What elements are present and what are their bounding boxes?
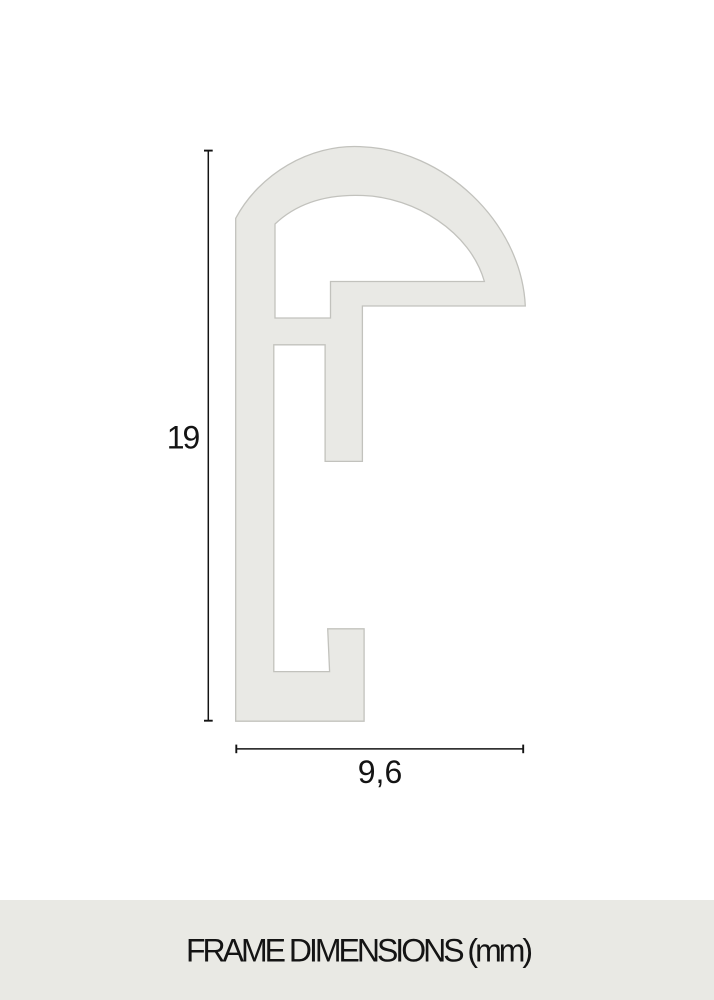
svg-text:FRAME DIMENSIONS (mm): FRAME DIMENSIONS (mm)	[186, 933, 531, 969]
svg-text:9,6: 9,6	[358, 754, 402, 790]
svg-text:19: 19	[167, 419, 200, 455]
